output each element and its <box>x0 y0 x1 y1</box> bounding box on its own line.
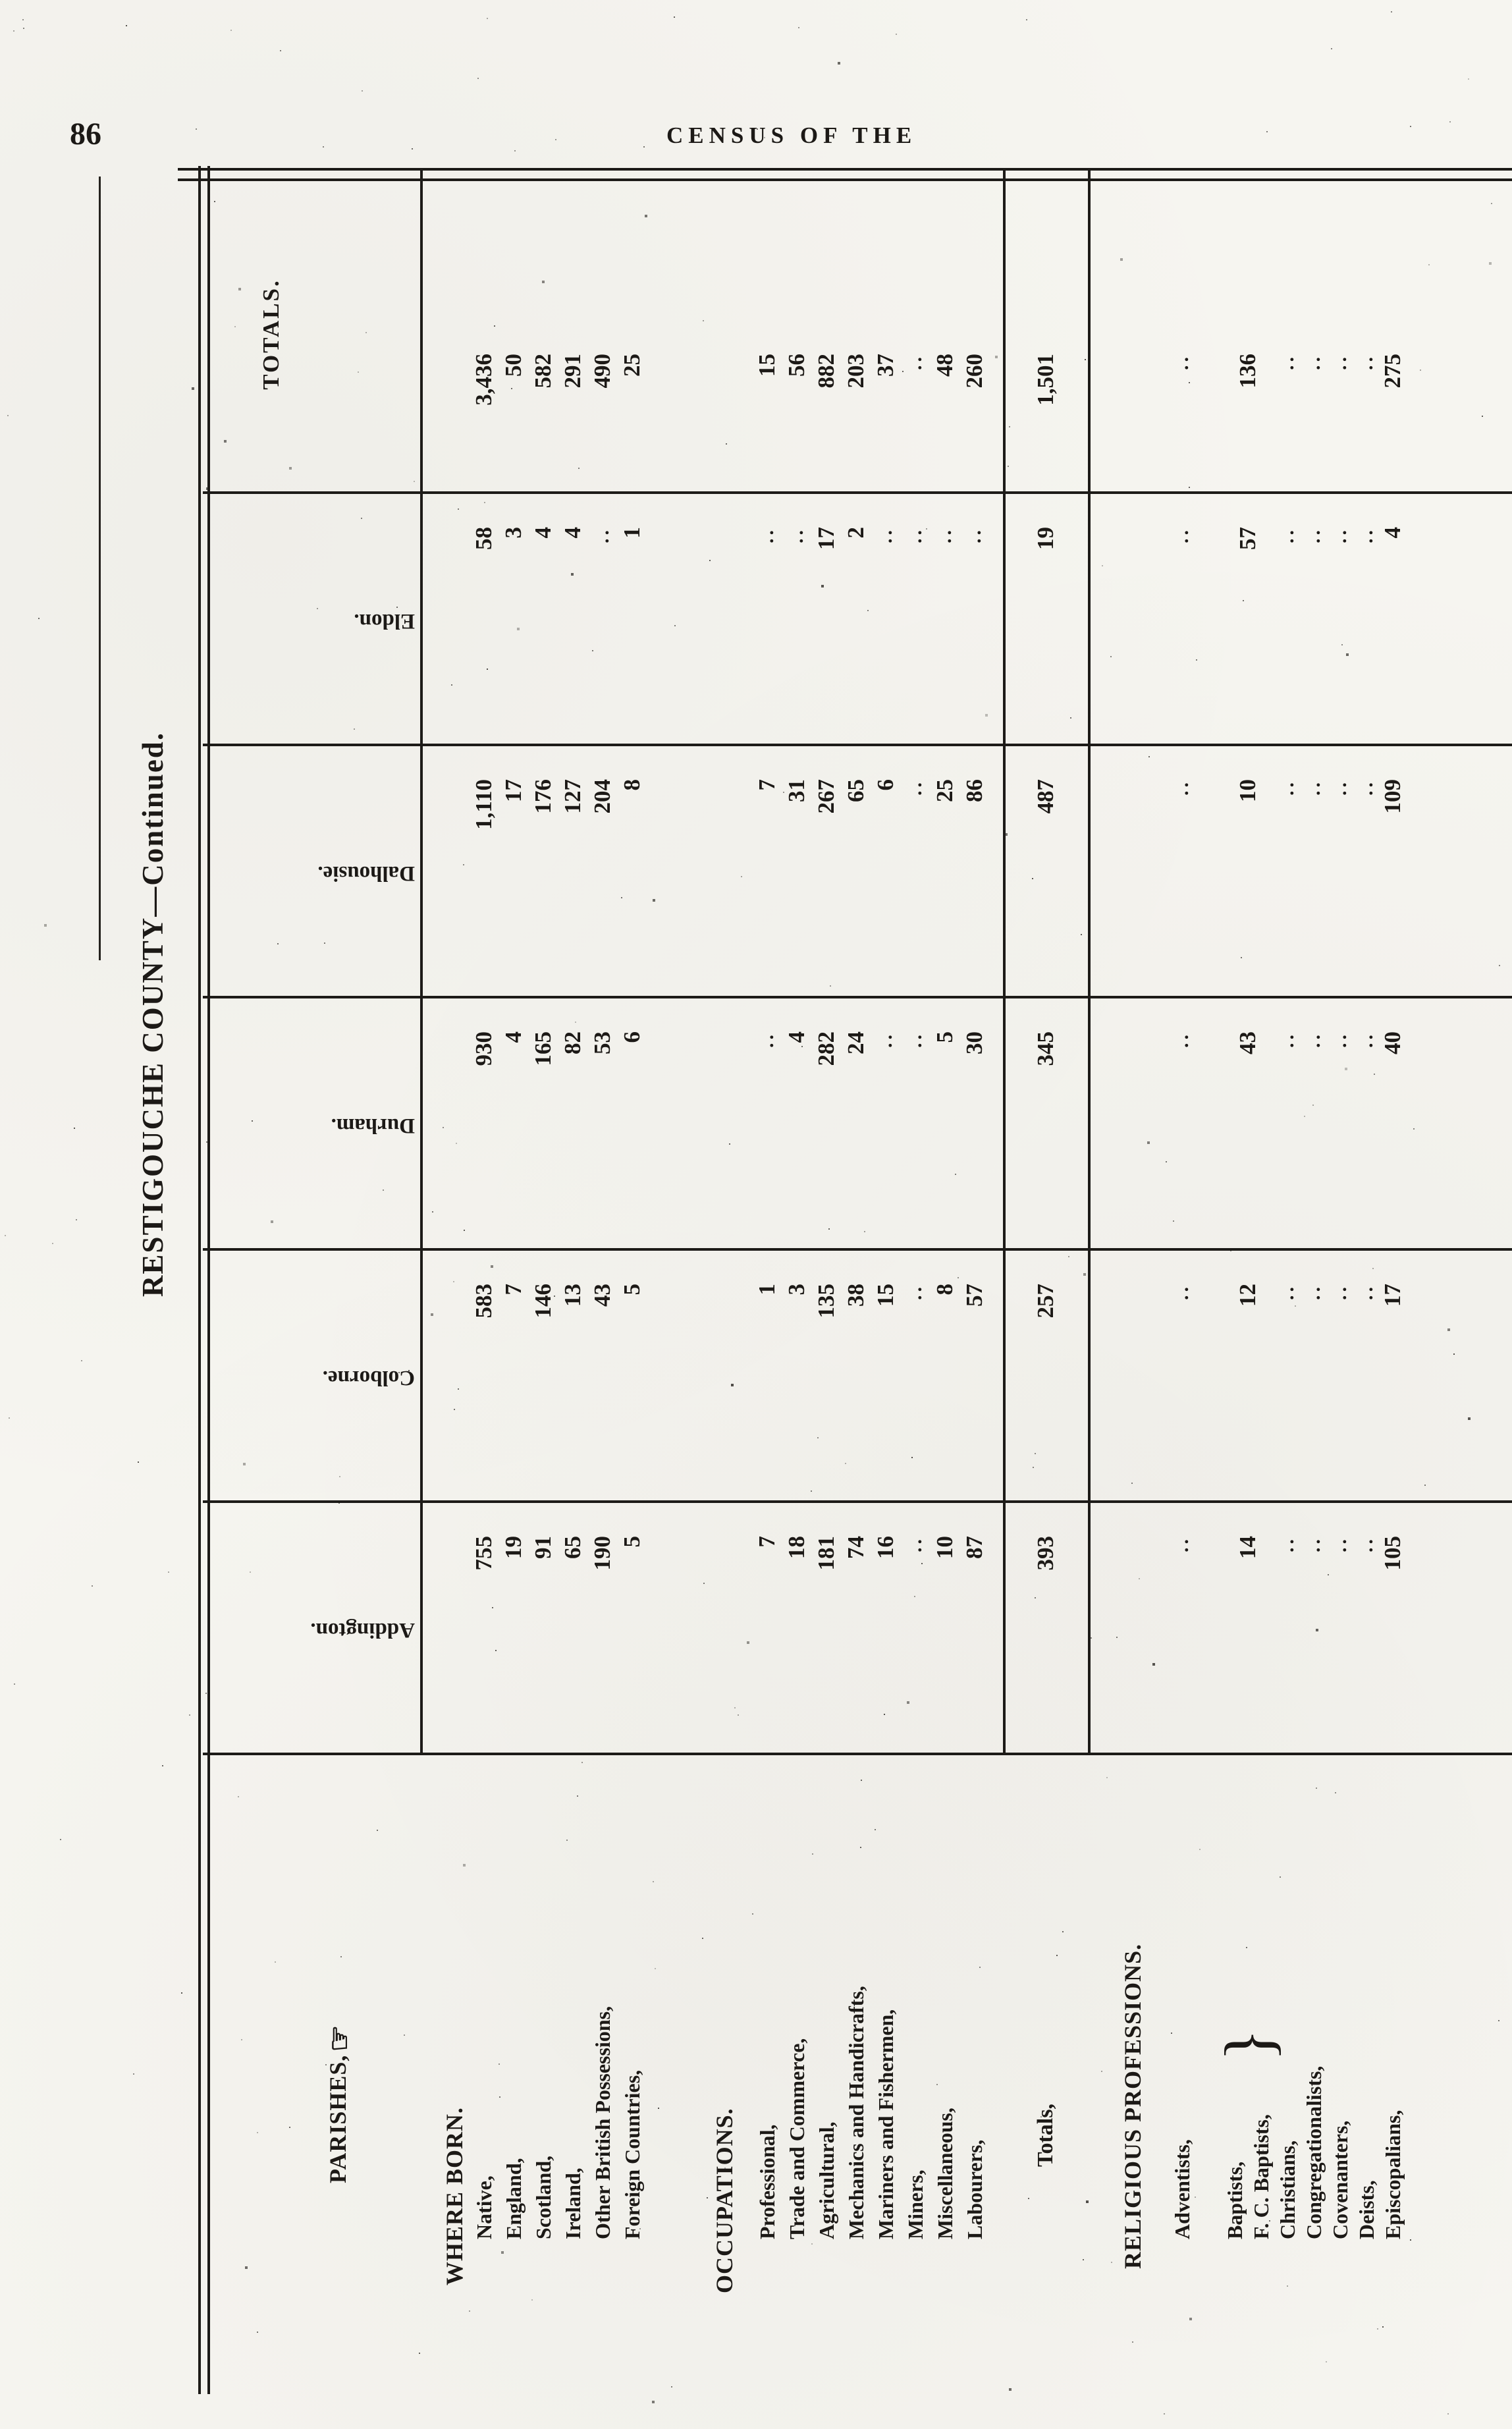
col-rule-labels-addington <box>203 1753 1512 1755</box>
blank-cell: .. <box>1165 1284 1199 1500</box>
value-cell: 57 <box>1231 527 1265 743</box>
col-rule-durham-dalhousie <box>203 996 1512 998</box>
value-cell: 487 <box>1029 779 1063 995</box>
value-cell: 1,501 <box>1029 354 1063 491</box>
table-top-rule-inner <box>207 166 210 2394</box>
value-cell: 109 <box>1376 779 1410 995</box>
value-cell: 40 <box>1376 1031 1410 1247</box>
column-header-eldon: Eldon. <box>354 609 415 633</box>
value-cell: 275 <box>1376 354 1410 491</box>
blank-cell: .. <box>1165 527 1199 743</box>
column-header-colborne: Colborne. <box>323 1365 415 1390</box>
col-rule-eldon-totals <box>203 491 1512 494</box>
table-top-rule-outer <box>198 166 201 2394</box>
value-cell: 345 <box>1029 1031 1063 1247</box>
section-title-religious: RELIGIOUS PROFESSIONS. <box>1116 1944 1149 2269</box>
row-label: Mariners and Fishermen, <box>870 2009 902 2239</box>
table-right-rule-outer <box>178 168 1512 171</box>
value-cell: 4 <box>1376 527 1410 743</box>
manicule-icon: ☞ <box>323 2024 356 2054</box>
value-cell: 136 <box>1231 354 1265 491</box>
row-label: Other British Possessions, <box>587 2006 618 2239</box>
blank-cell: .. <box>1165 1031 1199 1247</box>
value-cell: 1 <box>615 527 649 743</box>
row-label: Episcopalians, <box>1377 2110 1409 2239</box>
blank-cell: .. <box>1165 779 1199 995</box>
section-title-where-born: WHERE BORN. <box>438 2107 471 2285</box>
page-number: 86 <box>70 116 101 152</box>
row-label: Totals, <box>1030 2104 1062 2167</box>
value-cell: 393 <box>1029 1536 1063 1752</box>
value-cell: 25 <box>615 354 649 491</box>
column-header-addington: Addington. <box>310 1618 415 1642</box>
value-cell: 14 <box>1231 1536 1265 1752</box>
value-cell: 57 <box>958 1284 992 1500</box>
row-label: Miners, <box>900 2170 931 2239</box>
header-underline-rule <box>420 171 423 1755</box>
value-cell: 5 <box>615 1536 649 1752</box>
col-rule-dalhousie-eldon <box>203 744 1512 746</box>
parishes-header: PARISHES,☞ <box>321 2024 357 2183</box>
blank-cell: .. <box>1165 1536 1199 1752</box>
value-cell: 8 <box>615 779 649 995</box>
totals-row-bottom-rule <box>1088 171 1091 1755</box>
table-right-rule-inner <box>178 178 1512 181</box>
row-label: Labourers, <box>959 2140 990 2239</box>
value-cell: 10 <box>1231 779 1265 995</box>
scanned-census-page: 86 CENSUS OF THE RESTIGOUCHE COUNTY—Cont… <box>0 0 1512 2429</box>
row-label: Scotland, <box>527 2156 559 2239</box>
value-cell: 257 <box>1029 1284 1063 1500</box>
value-cell: 12 <box>1231 1284 1265 1500</box>
row-label: Miscellaneous, <box>929 2108 961 2239</box>
value-cell: 6 <box>615 1031 649 1247</box>
value-cell: 5 <box>615 1284 649 1500</box>
row-label: England, <box>498 2158 529 2239</box>
row-label: Trade and Commerce, <box>781 2038 813 2239</box>
blank-cell: .. <box>958 527 992 743</box>
value-cell: 105 <box>1376 1536 1410 1752</box>
running-header: CENSUS OF THE <box>666 123 917 149</box>
section-title-occupations: OCCUPATIONS. <box>708 2108 741 2293</box>
value-cell: 87 <box>958 1536 992 1752</box>
col-rule-addington-colborne <box>203 1500 1512 1503</box>
blank-cell: .. <box>1165 354 1199 491</box>
table-title: RESTIGOUCHE COUNTY—Continued. <box>136 692 170 1337</box>
value-cell: 30 <box>958 1031 992 1247</box>
col-rule-colborne-durham <box>203 1248 1512 1251</box>
gutter-line <box>99 177 101 960</box>
column-header-dalhousie: Dalhousie. <box>317 861 415 885</box>
value-cell: 86 <box>958 779 992 995</box>
value-cell: 17 <box>1376 1284 1410 1500</box>
row-label: Professional, <box>751 2124 783 2239</box>
row-label: Native, <box>468 2175 500 2239</box>
value-cell: 43 <box>1231 1031 1265 1247</box>
parishes-header-text: PARISHES, <box>325 2055 351 2183</box>
totals-row-top-rule <box>1003 171 1006 1755</box>
row-label: Foreign Countries, <box>616 2070 648 2239</box>
row-label: Agricultural, <box>811 2121 842 2239</box>
baptists-brace: } <box>1216 2029 1282 2061</box>
row-label: Mechanics and Handicrafts, <box>840 1986 872 2239</box>
column-header-totals: TOTALS. <box>258 178 284 491</box>
column-header-durham: Durham. <box>331 1113 415 1137</box>
value-cell: 19 <box>1029 527 1063 743</box>
row-label: Ireland, <box>557 2168 589 2239</box>
row-label: Adventists, <box>1166 2139 1198 2239</box>
value-cell: 260 <box>958 354 992 491</box>
rotated-census-table: RESTIGOUCHE COUNTY—Continued. PARISHES,☞… <box>132 151 1512 2404</box>
